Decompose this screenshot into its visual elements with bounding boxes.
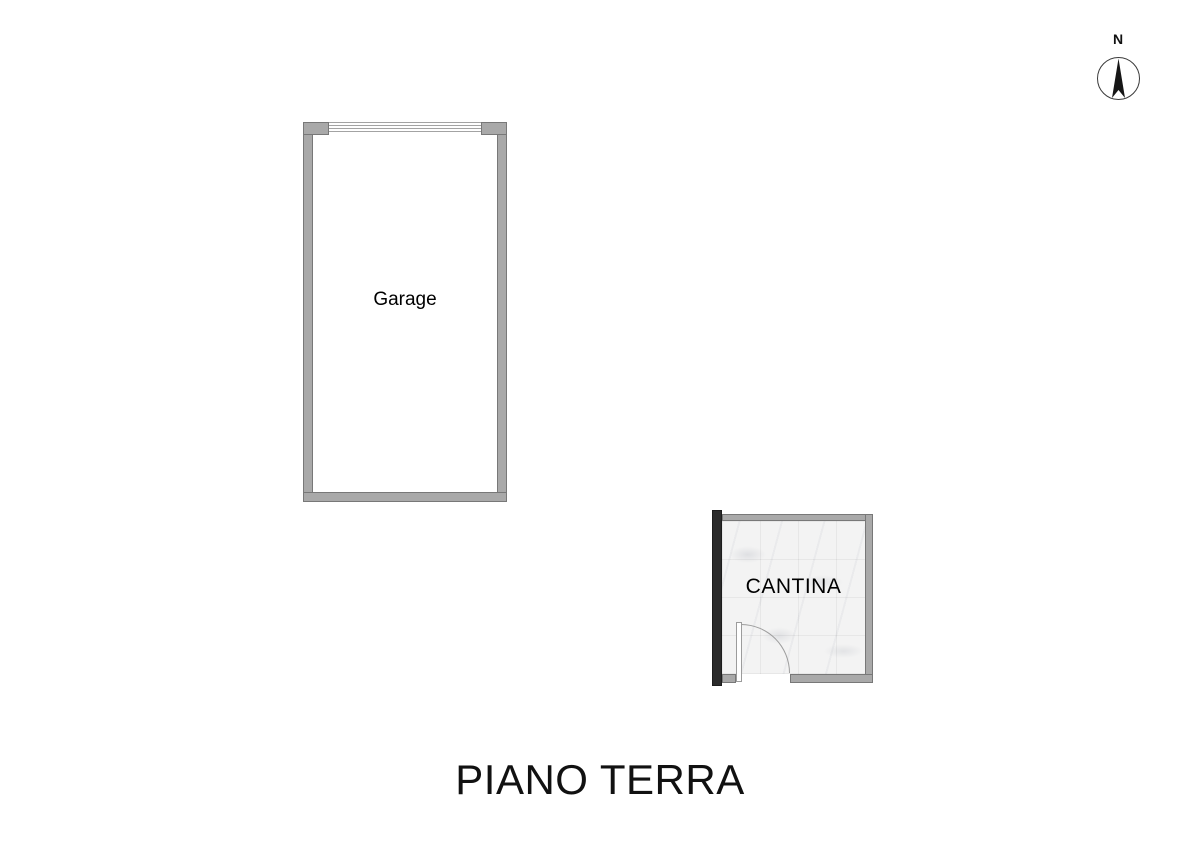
garage-label: Garage <box>303 289 507 311</box>
cantina-wall-bottom-stub <box>722 674 736 683</box>
garage-door-jamb-right <box>481 122 507 135</box>
cantina-wall-left-dark <box>712 510 722 686</box>
compass: N <box>1096 31 1140 100</box>
garage-door <box>328 122 482 132</box>
cantina-wall-right <box>865 514 873 683</box>
compass-circle <box>1097 57 1140 100</box>
cantina-wall-bottom <box>790 674 873 683</box>
garage-wall-left <box>303 122 313 502</box>
garage-wall-right <box>497 122 507 502</box>
garage-room: Garage <box>303 122 507 502</box>
garage-interior <box>313 132 497 492</box>
cantina-wall-top <box>722 514 873 521</box>
north-arrow-icon <box>1098 58 1139 99</box>
floor-title: PIANO TERRA <box>0 757 1200 803</box>
door-leaf <box>736 622 742 682</box>
garage-door-jamb-left <box>303 122 329 135</box>
floor-plan: Garage CANTINA N PIANO TERRA <box>0 0 1200 850</box>
cantina-label: CANTINA <box>722 575 865 599</box>
garage-wall-bottom <box>303 492 507 502</box>
cantina-room: CANTINA <box>712 512 873 683</box>
compass-north-label: N <box>1096 31 1140 47</box>
